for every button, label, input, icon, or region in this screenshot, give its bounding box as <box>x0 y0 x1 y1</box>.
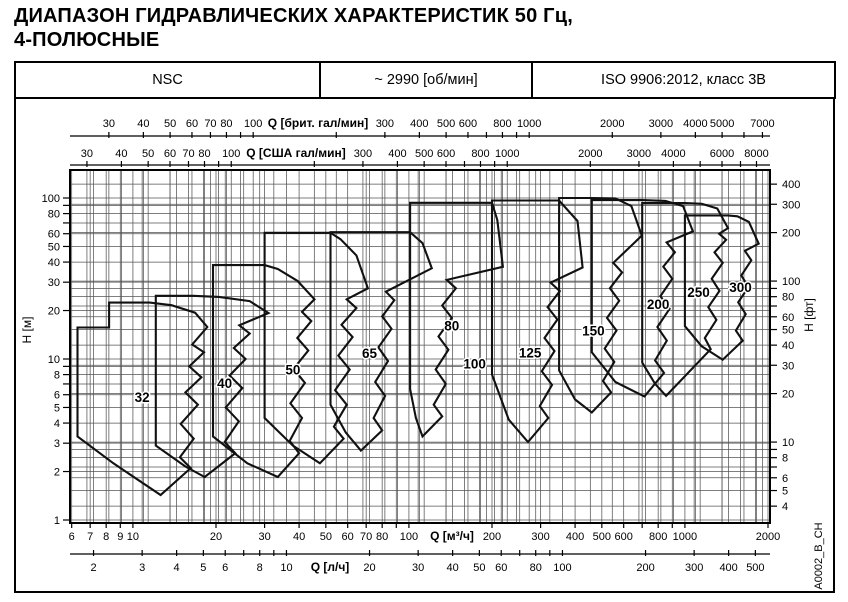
tick-label-brit: 3000 <box>649 118 673 130</box>
tick-label-m: 100 <box>42 193 60 205</box>
tick-label-ls: 2 <box>90 562 96 574</box>
tick-label-ft: 40 <box>782 340 794 352</box>
tick-label-brit: 300 <box>376 118 394 130</box>
tick-label-brit: 2000 <box>600 118 624 130</box>
tick-label-ls: 50 <box>473 562 485 574</box>
tick-label-m: 30 <box>48 277 60 289</box>
envelope-label-80: 80 <box>444 318 459 333</box>
tick-label-us: 4000 <box>661 148 685 160</box>
tick-label-us: 80 <box>198 148 210 160</box>
tick-label-us: 3000 <box>627 148 651 160</box>
tick-label-brit: 400 <box>410 118 428 130</box>
tick-label-us: 6000 <box>710 148 734 160</box>
tick-label-ls: 500 <box>746 562 764 574</box>
tick-label-m3h: 800 <box>649 531 667 543</box>
tick-label-ls: 6 <box>222 562 228 574</box>
tick-label-m3h: 30 <box>258 531 270 543</box>
envelope-label-250: 250 <box>687 285 710 300</box>
tick-label-m3h: 300 <box>531 531 549 543</box>
tick-label-m: 8 <box>54 370 60 382</box>
axis-m: 123456810203040506080100H [м] <box>20 193 70 527</box>
tick-label-brit: 500 <box>437 118 455 130</box>
tick-label-ft: 80 <box>782 292 794 304</box>
tick-label-m: 60 <box>48 229 60 241</box>
axis-unit-us: Q [США гал/мин] <box>246 146 346 160</box>
tick-label-brit: 5000 <box>710 118 734 130</box>
tick-label-ls: 8 <box>257 562 263 574</box>
tick-label-ls: 80 <box>530 562 542 574</box>
tick-label-ls: 30 <box>412 562 424 574</box>
tick-label-ls: 400 <box>719 562 737 574</box>
tick-label-m3h: 8 <box>103 531 109 543</box>
grid <box>70 170 770 523</box>
tick-label-ls: 20 <box>363 562 375 574</box>
tick-label-m: 5 <box>54 402 60 414</box>
tick-label-ls: 10 <box>280 562 292 574</box>
tick-label-m3h: 600 <box>615 531 633 543</box>
tick-label-m3h: 1000 <box>673 531 697 543</box>
envelope-125 <box>492 201 583 443</box>
tick-label-ls: 100 <box>553 562 571 574</box>
envelope-150 <box>559 198 642 413</box>
envelope-label-125: 125 <box>519 345 542 360</box>
tick-label-m3h: 80 <box>376 531 388 543</box>
tick-label-m: 6 <box>54 390 60 402</box>
tick-label-ls: 300 <box>685 562 703 574</box>
envelope-label-65: 65 <box>362 346 378 361</box>
tick-label-us: 400 <box>388 148 406 160</box>
tick-label-us: 800 <box>471 148 489 160</box>
axis-unit-brit: Q [брит. гал/мин] <box>268 116 368 130</box>
axis-ls: 23456810203040506080100200300400500Q [л/… <box>70 550 770 574</box>
tick-label-ft: 5 <box>782 486 788 498</box>
tick-label-brit: 7000 <box>750 118 774 130</box>
tick-label-m3h: 70 <box>360 531 372 543</box>
tick-label-ft: 4 <box>782 501 788 513</box>
tick-label-m3h: 6 <box>69 531 75 543</box>
tick-label-ft: 6 <box>782 473 788 485</box>
tick-label-m3h: 9 <box>117 531 123 543</box>
tick-label-m3h: 40 <box>293 531 305 543</box>
tick-label-m: 2 <box>54 467 60 479</box>
tick-label-ls: 3 <box>139 562 145 574</box>
tick-label-us: 8000 <box>744 148 768 160</box>
tick-label-m3h: 2000 <box>756 531 780 543</box>
tick-label-ft: 50 <box>782 325 794 337</box>
tick-label-ft: 200 <box>782 228 800 240</box>
tick-label-us: 70 <box>182 148 194 160</box>
tick-label-ft: 8 <box>782 453 788 465</box>
axis-m3h: 6789102030405060708010020030040050060080… <box>69 523 781 543</box>
tick-label-brit: 80 <box>220 118 232 130</box>
axis-ft: 456810203040506080100200300400H [фт] <box>770 179 816 513</box>
envelope-label-200: 200 <box>647 297 670 312</box>
tick-label-ls: 5 <box>200 562 206 574</box>
tick-label-m3h: 60 <box>342 531 354 543</box>
tick-label-ls: 4 <box>174 562 180 574</box>
tick-label-ft: 100 <box>782 276 800 288</box>
axis-unit-m3h: Q [м³/ч] <box>430 529 474 543</box>
envelope-65 <box>265 233 368 463</box>
tick-label-m: 50 <box>48 241 60 253</box>
tick-label-us: 600 <box>437 148 455 160</box>
tick-label-ft: 60 <box>782 312 794 324</box>
tick-label-m3h: 200 <box>483 531 501 543</box>
axis-unit-m: H [м] <box>20 317 34 344</box>
tick-label-us: 40 <box>115 148 127 160</box>
tick-label-us: 2000 <box>578 148 602 160</box>
tick-label-ls: 40 <box>446 562 458 574</box>
axis-brit: 3040506070801003004005006008001000200030… <box>70 116 775 138</box>
tick-label-us: 60 <box>164 148 176 160</box>
tick-label-m: 1 <box>54 515 60 527</box>
page: ДИАПАЗОН ГИДРАВЛИЧЕСКИХ ХАРАКТЕРИСТИК 50… <box>0 0 848 602</box>
tick-label-brit: 70 <box>204 118 216 130</box>
tick-label-m3h: 100 <box>400 531 418 543</box>
range-chart: 3240506580100125150200250300304050607080… <box>0 0 848 602</box>
tick-label-ft: 10 <box>782 437 794 449</box>
tick-label-m: 4 <box>54 418 60 430</box>
tick-label-us: 30 <box>81 148 93 160</box>
tick-label-ls: 200 <box>636 562 654 574</box>
tick-label-ls: 60 <box>495 562 507 574</box>
tick-label-brit: 60 <box>186 118 198 130</box>
tick-label-m: 40 <box>48 257 60 269</box>
tick-label-ft: 400 <box>782 179 800 191</box>
axis-unit-ls: Q [л/ч] <box>311 560 350 574</box>
axis-unit-ft: H [фт] <box>802 298 816 332</box>
tick-label-m3h: 500 <box>593 531 611 543</box>
tick-label-m3h: 20 <box>210 531 222 543</box>
tick-label-brit: 100 <box>244 118 262 130</box>
envelope-label-150: 150 <box>582 324 605 339</box>
envelope-label-40: 40 <box>217 376 232 391</box>
tick-label-brit: 800 <box>493 118 511 130</box>
tick-label-m: 80 <box>48 209 60 221</box>
tick-label-m: 10 <box>48 354 60 366</box>
axis-us: 3040506070801003004005006008001000200030… <box>70 146 770 167</box>
tick-label-m3h: 10 <box>127 531 139 543</box>
tick-label-ft: 300 <box>782 199 800 211</box>
tick-label-m3h: 400 <box>566 531 584 543</box>
tick-label-brit: 30 <box>103 118 115 130</box>
envelope-label-50: 50 <box>285 363 300 378</box>
envelope-label-100: 100 <box>463 356 486 371</box>
tick-label-m3h: 7 <box>87 531 93 543</box>
tick-label-ft: 20 <box>782 389 794 401</box>
tick-label-brit: 50 <box>164 118 176 130</box>
tick-label-m3h: 50 <box>320 531 332 543</box>
tick-label-ft: 30 <box>782 360 794 372</box>
tick-label-m: 20 <box>48 306 60 318</box>
tick-label-brit: 40 <box>137 118 149 130</box>
tick-label-us: 100 <box>222 148 240 160</box>
tick-label-brit: 600 <box>459 118 477 130</box>
tick-label-us: 1000 <box>495 148 519 160</box>
tick-label-m: 3 <box>54 438 60 450</box>
tick-label-brit: 4000 <box>683 118 707 130</box>
tick-label-brit: 1000 <box>517 118 541 130</box>
envelope-label-32: 32 <box>135 390 150 405</box>
tick-label-us: 300 <box>354 148 372 160</box>
tick-label-us: 50 <box>142 148 154 160</box>
envelope-label-300: 300 <box>729 280 752 295</box>
tick-label-us: 500 <box>415 148 433 160</box>
drawing-code: A0002_B_CH <box>813 522 825 589</box>
